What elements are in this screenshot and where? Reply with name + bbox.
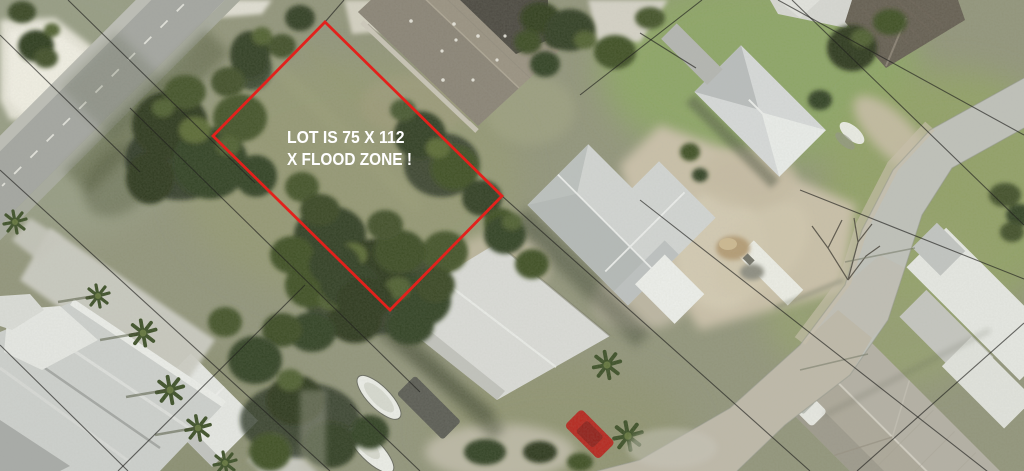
- svg-text:LOT IS 75 X 112: LOT IS 75 X 112: [287, 127, 405, 147]
- svg-text:X FLOOD ZONE !: X FLOOD ZONE !: [287, 149, 412, 169]
